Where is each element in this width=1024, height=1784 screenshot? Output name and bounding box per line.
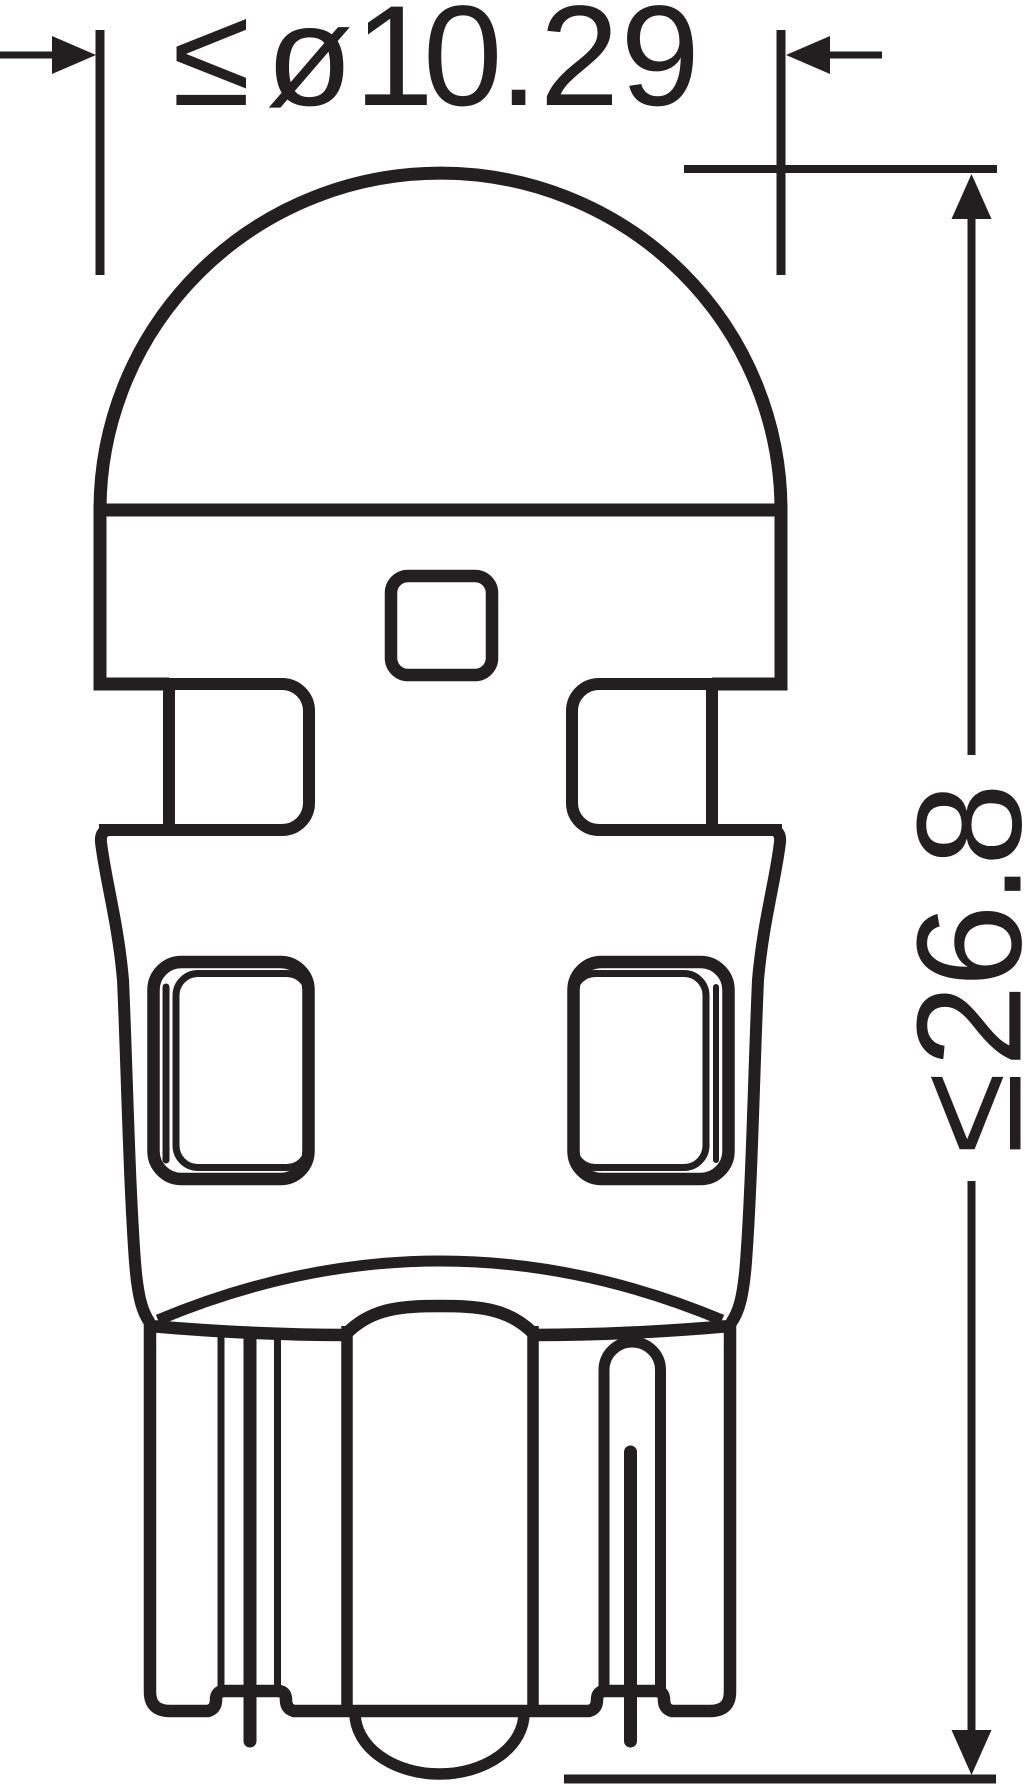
svg-text:≤ø10.29: ≤ø10.29 xyxy=(172,0,701,136)
svg-text:≤26.8: ≤26.8 xyxy=(886,783,1024,1154)
